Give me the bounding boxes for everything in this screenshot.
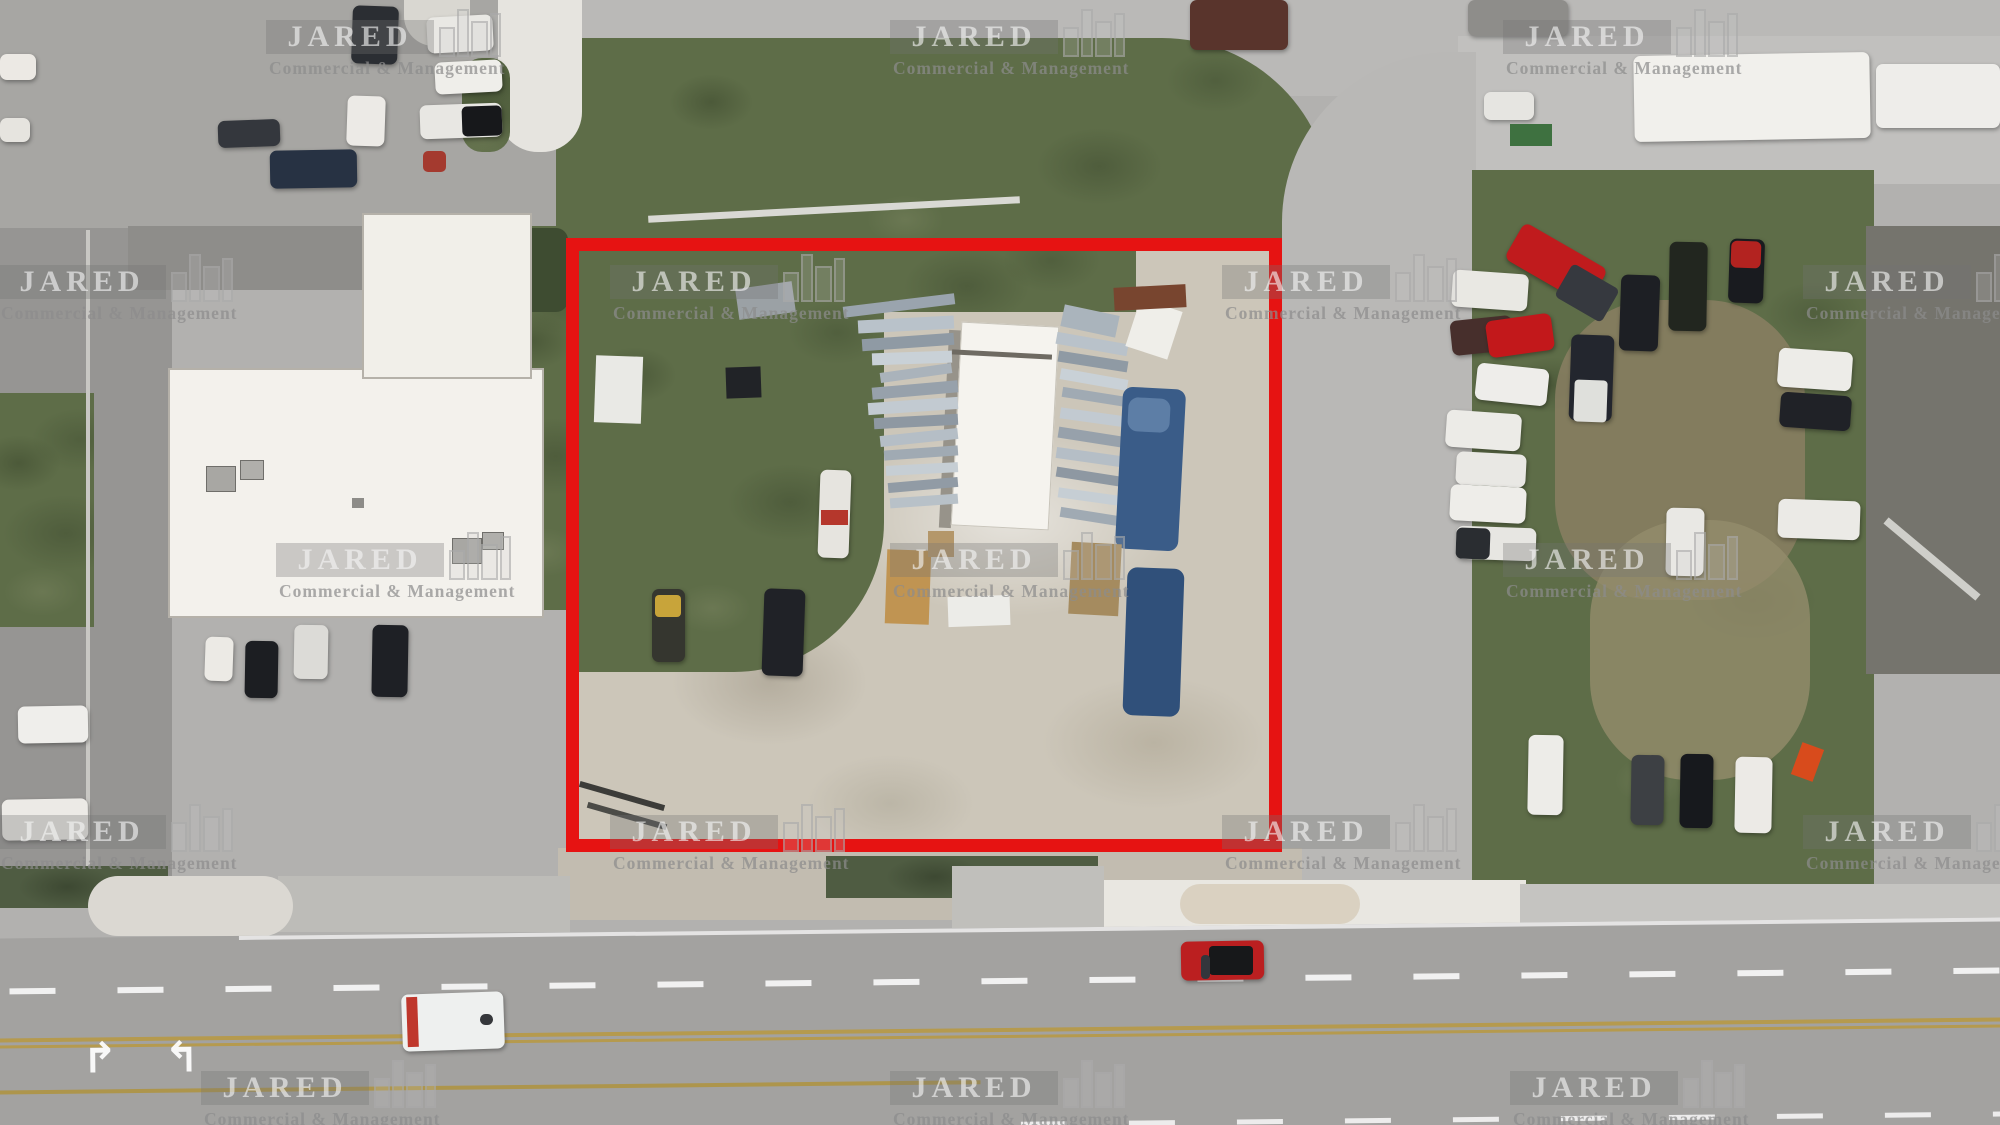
car-dark-half (1455, 527, 1490, 559)
lane-dash (1845, 969, 1891, 975)
suv-white (1455, 451, 1527, 488)
turn-arrow-icon: ↱ (82, 1037, 118, 1079)
lane-dash (1453, 1117, 1499, 1122)
building-left-wing (362, 213, 532, 379)
property-boundary (566, 238, 1282, 852)
car-white-edge (0, 54, 36, 80)
car-white (1777, 499, 1860, 541)
person (1201, 955, 1210, 979)
lane-dash (1885, 1112, 1931, 1117)
car-white (434, 59, 503, 94)
yellow-line (0, 1080, 981, 1094)
lane-dash (1737, 970, 1783, 976)
car-silver (294, 625, 329, 680)
car-white (1474, 362, 1549, 406)
truck-bed-black (461, 105, 502, 136)
road-vertical (1282, 52, 1476, 944)
van-red-stripe (406, 997, 419, 1047)
car-white (1451, 269, 1529, 311)
turn-arrow-icon: ↰ (164, 1036, 200, 1078)
car-white-edge (0, 118, 30, 142)
lane-dash (1089, 977, 1135, 983)
hvac-unit (352, 498, 364, 508)
van-detail (480, 1014, 493, 1025)
curb-line (86, 230, 90, 880)
car-white (1527, 735, 1563, 816)
car-black (371, 625, 408, 698)
hvac-unit (206, 466, 236, 492)
pickup-darkgreen (1668, 242, 1708, 332)
truck-gray (1468, 0, 1568, 36)
car-white (1449, 484, 1527, 524)
van-white (346, 95, 386, 146)
suv-dark (351, 5, 399, 65)
lane-dash (1953, 968, 1999, 974)
truck-bed-black (1209, 946, 1253, 975)
car-white (1665, 508, 1704, 577)
lane-dash (225, 986, 271, 992)
car-black (245, 641, 279, 699)
lane-dash (333, 984, 379, 990)
lane-dash (1413, 973, 1459, 979)
trailer-white (1876, 64, 2000, 128)
green-dumpster (1510, 124, 1552, 146)
lane-dash (1777, 1113, 1823, 1118)
lane-dash (657, 981, 703, 987)
red-equipment (423, 151, 446, 172)
trailer-white (1633, 52, 1870, 142)
hvac-unit (452, 538, 482, 564)
semi-truck-darkred (1190, 0, 1288, 50)
lane-dash (1345, 1118, 1391, 1123)
lane-dash (981, 978, 1027, 984)
apron-left (278, 876, 570, 932)
lane-dash (9, 988, 55, 994)
lane-dash (873, 979, 919, 985)
lane-dash (441, 983, 487, 989)
grass-left (0, 393, 94, 627)
lane-dash (1021, 1121, 1067, 1125)
asphalt-east (1866, 226, 2000, 674)
lane-dash (765, 980, 811, 986)
lane-dash (117, 987, 163, 993)
buildings-icon (171, 798, 233, 852)
hvac-unit (482, 532, 504, 550)
car-dark (218, 119, 281, 148)
lane-dash (1629, 971, 1675, 977)
car-white (1777, 347, 1854, 391)
suv-black (1619, 274, 1661, 351)
car-black (1679, 754, 1713, 829)
lane-dash (1305, 974, 1351, 980)
lane-dash (549, 982, 595, 988)
lane-dash (1561, 1116, 1607, 1121)
white-sheet-load (1573, 379, 1607, 422)
lane-dash (1993, 1111, 2000, 1116)
car-gray (1630, 755, 1664, 826)
pickup-white (2, 798, 89, 840)
red-car-cover (1731, 240, 1762, 268)
lane-dash (1521, 972, 1567, 978)
building-left-main (168, 368, 544, 618)
apron-mid (952, 866, 1104, 928)
wall-stain (1180, 884, 1360, 924)
lane-dash (1237, 1119, 1283, 1124)
lane-dash (1669, 1115, 1715, 1120)
car-black (1779, 392, 1852, 432)
buildings-icon (1976, 798, 2000, 852)
car-white (18, 705, 89, 743)
hvac-unit (240, 460, 264, 480)
car-darkblue (270, 149, 358, 189)
van-white-small (1484, 92, 1534, 120)
suv-white (426, 14, 494, 53)
car-white (1445, 409, 1522, 451)
car-white (1734, 757, 1772, 834)
road: ↱↰ (0, 917, 2000, 1125)
aerial-photo: ↱↰JAREDCommercial & ManagementJAREDComme… (0, 0, 2000, 1125)
gravel-patch-top (498, 0, 582, 152)
pickup-white (204, 637, 234, 682)
gravel-mound (88, 876, 293, 936)
lane-dash (1129, 1120, 1175, 1125)
pavement-dark-band (128, 226, 380, 290)
